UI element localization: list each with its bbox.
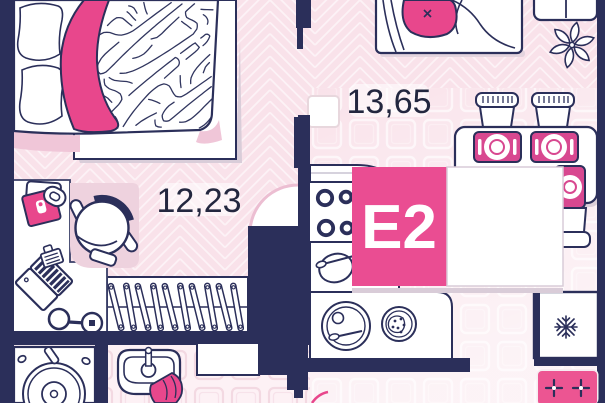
svg-text:12,23: 12,23 bbox=[156, 182, 241, 220]
svg-text:13,65: 13,65 bbox=[346, 83, 431, 121]
svg-text:E2: E2 bbox=[361, 193, 437, 262]
